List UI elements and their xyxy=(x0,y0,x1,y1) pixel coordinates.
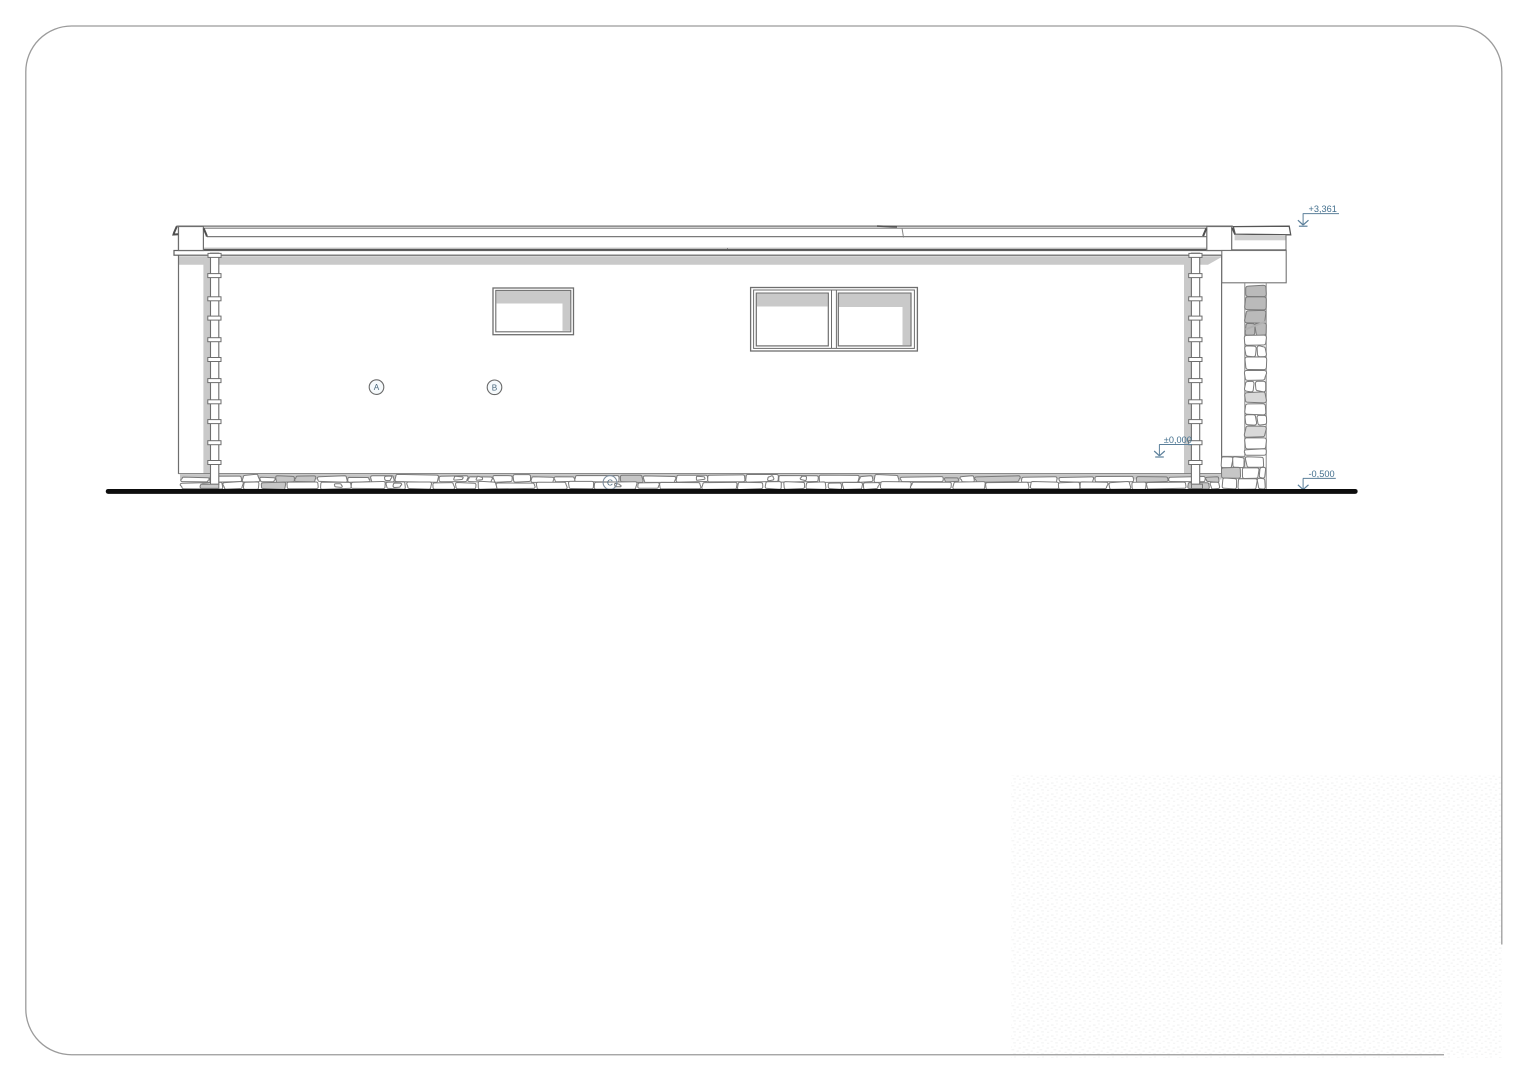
svg-text:B: B xyxy=(492,383,498,392)
svg-text:C: C xyxy=(607,479,613,488)
svg-text:±0,000: ±0,000 xyxy=(1164,435,1192,445)
svg-text:+3,361: +3,361 xyxy=(1309,204,1337,214)
svg-text:-0,500: -0,500 xyxy=(1309,469,1335,479)
svg-text:A: A xyxy=(374,383,380,392)
